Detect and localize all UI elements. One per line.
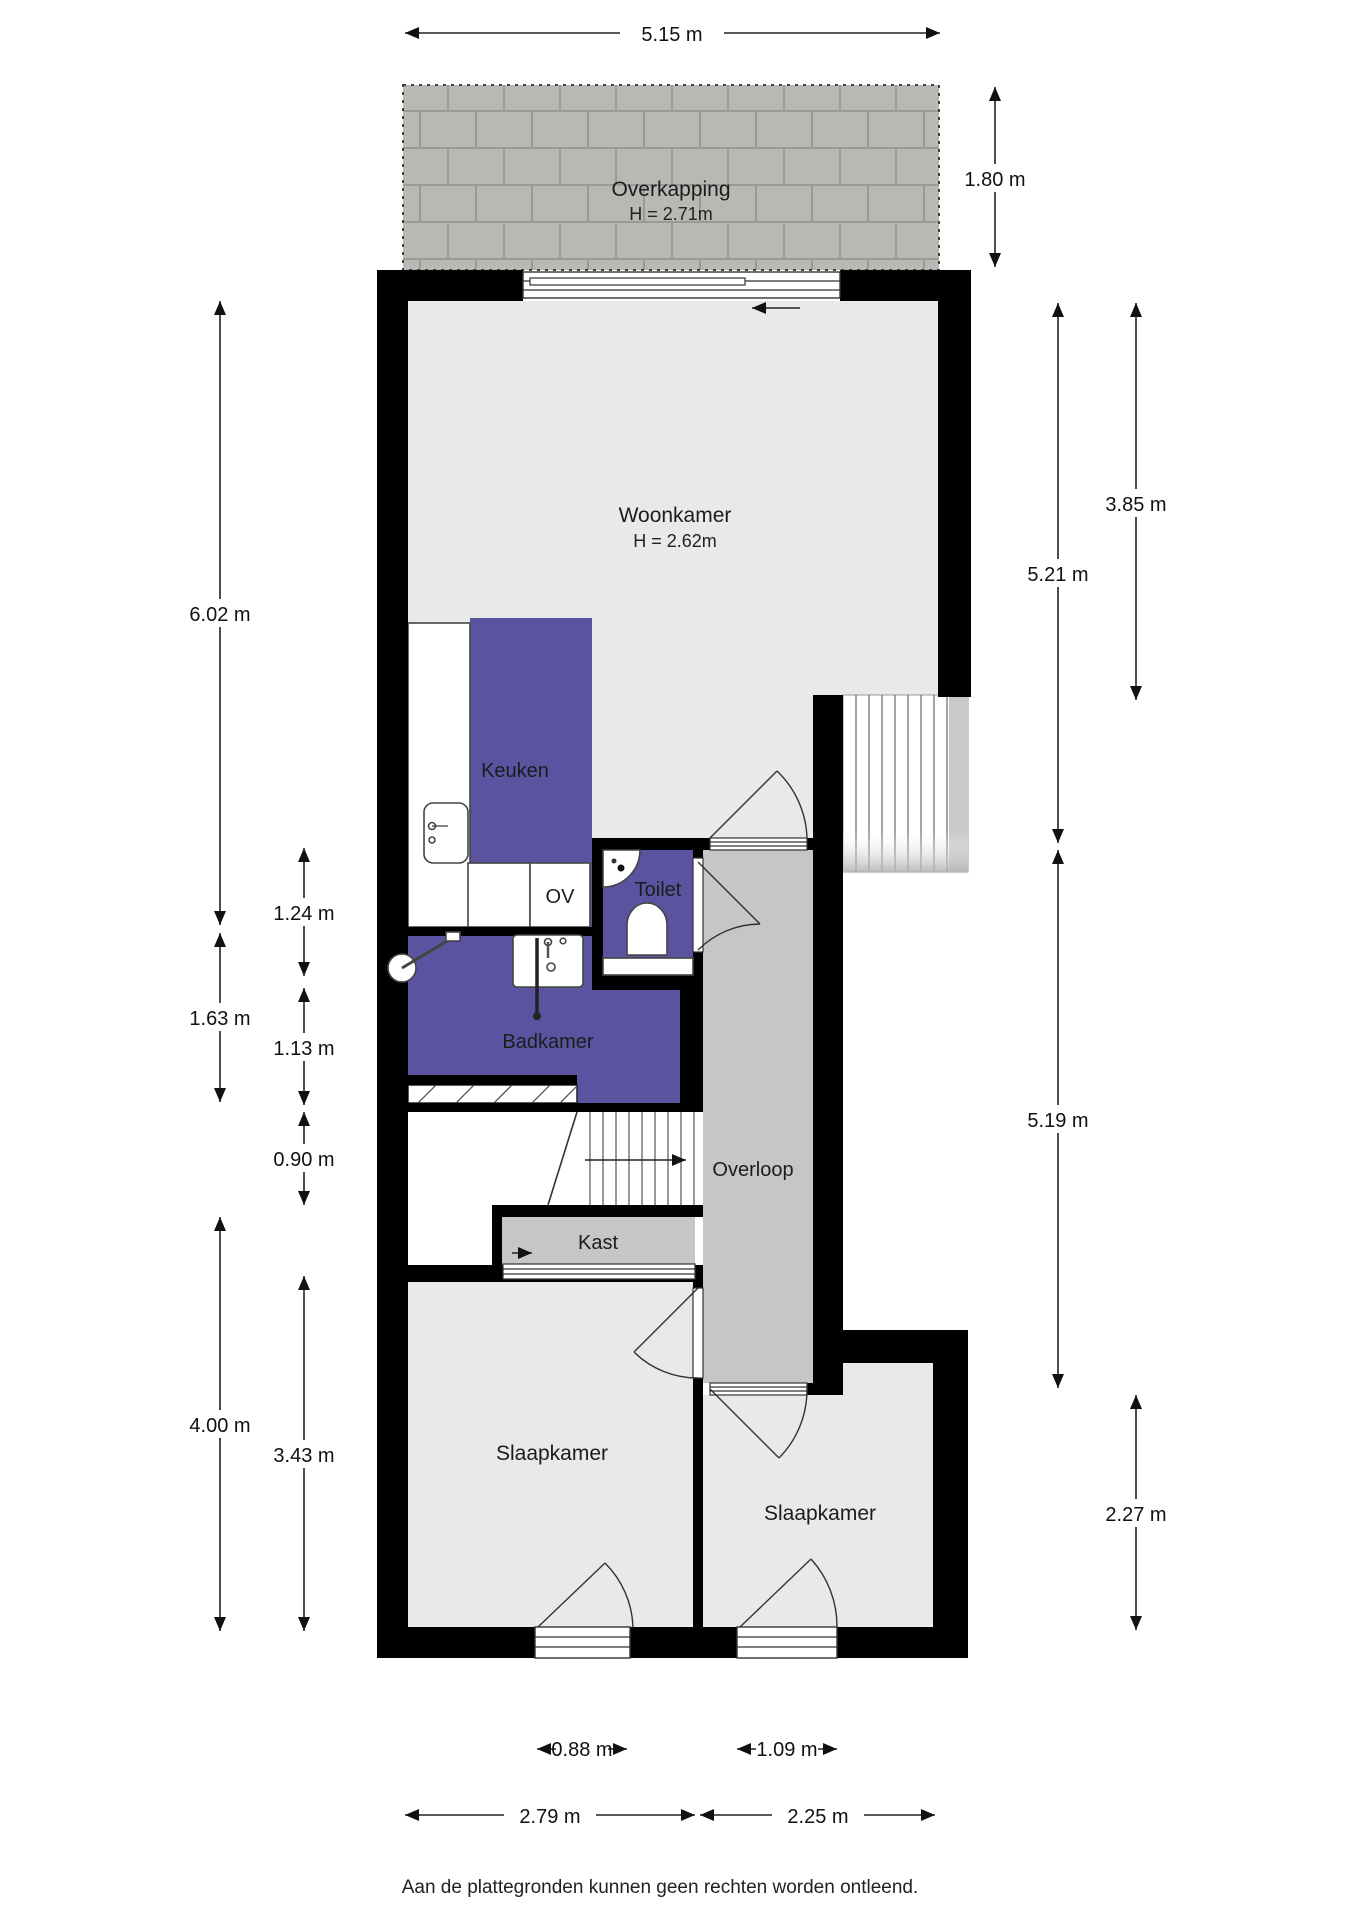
entry-stairs-fade xyxy=(843,830,968,872)
kitchen-counter xyxy=(408,623,470,927)
overloop-floor xyxy=(703,850,813,1383)
sliding-door-leaf xyxy=(530,278,745,285)
kitchen-sink-icon xyxy=(424,803,468,863)
floorplan-page: Overkapping H = 2.71m Woonkamer H = 2.62… xyxy=(0,0,1358,1920)
slaapkamer-right-floor xyxy=(703,1363,933,1627)
hatched-strip xyxy=(408,1085,577,1103)
wall-badkamer-south xyxy=(408,1075,577,1085)
dim-toilet-strip: 1.24 m xyxy=(273,903,334,925)
wall-right-bedroom-door-jamb xyxy=(807,1383,813,1395)
disclaimer-text: Aan de plattegronden kunnen geen rechten… xyxy=(402,1877,919,1898)
staircase-base xyxy=(577,1112,697,1205)
dim-bedroom-right-width: 2.25 m xyxy=(787,1806,848,1828)
floorplan-drawing: Overkapping H = 2.71m Woonkamer H = 2.62… xyxy=(0,0,1358,1920)
dim-left-main: 6.02 m xyxy=(189,604,250,626)
overkapping-height-label: H = 2.71m xyxy=(629,204,713,224)
wall-kast-north xyxy=(492,1205,703,1217)
dim-top-width: 5.15 m xyxy=(641,24,702,46)
dim-badkamer-outer: 1.63 m xyxy=(189,1008,250,1030)
dim-right-upper: 5.21 m xyxy=(1027,564,1088,586)
woonkamer-label: Woonkamer xyxy=(619,504,732,527)
wall-bottom xyxy=(377,1627,968,1658)
dim-window-right: 1.09 m xyxy=(756,1739,817,1761)
dim-left-lower: 4.00 m xyxy=(189,1415,250,1437)
wall-top-left xyxy=(377,270,523,301)
kitchen-cabinet xyxy=(468,863,530,927)
wall-step-right-bedroom xyxy=(843,1330,968,1363)
dim-bedroom-left-width: 2.79 m xyxy=(519,1806,580,1828)
dim-right-lower: 5.19 m xyxy=(1027,1110,1088,1132)
staircase xyxy=(548,1112,697,1205)
badkamer-label: Badkamer xyxy=(502,1031,593,1053)
wall-overloop-right xyxy=(813,695,843,1395)
wall-toilet-left xyxy=(592,850,603,990)
dim-right-bedroom: 2.27 m xyxy=(1105,1504,1166,1526)
slaapkamer-left-label: Slaapkamer xyxy=(496,1442,608,1465)
dim-badkamer-inner: 1.13 m xyxy=(273,1038,334,1060)
dim-right-upper-outer: 3.85 m xyxy=(1105,494,1166,516)
wall-right-upper xyxy=(938,270,971,697)
wall-toilet-south xyxy=(592,975,703,990)
woonkamer-height-label: H = 2.62m xyxy=(633,531,717,551)
wall-stairs-north xyxy=(408,1103,703,1112)
overloop-label: Overloop xyxy=(712,1159,793,1181)
bathroom-sink-icon xyxy=(513,935,583,987)
overkapping-label: Overkapping xyxy=(611,178,730,201)
wall-right-lower xyxy=(933,1363,968,1658)
staircase-break-line xyxy=(548,1112,577,1205)
dim-overkapping-depth: 1.80 m xyxy=(964,169,1025,191)
entry-stairs xyxy=(843,695,968,872)
dim-stairs: 0.90 m xyxy=(273,1149,334,1171)
slaapkamer-right-label: Slaapkamer xyxy=(764,1502,876,1525)
keuken-label: Keuken xyxy=(481,760,549,782)
dim-bedroom-left-height: 3.43 m xyxy=(273,1445,334,1467)
kast-label: Kast xyxy=(578,1232,618,1254)
ov-label: OV xyxy=(546,886,576,908)
dim-window-left: 0.88 m xyxy=(551,1739,612,1761)
wall-badkamer-east xyxy=(680,990,703,1103)
toilet-label: Toilet xyxy=(635,879,682,901)
